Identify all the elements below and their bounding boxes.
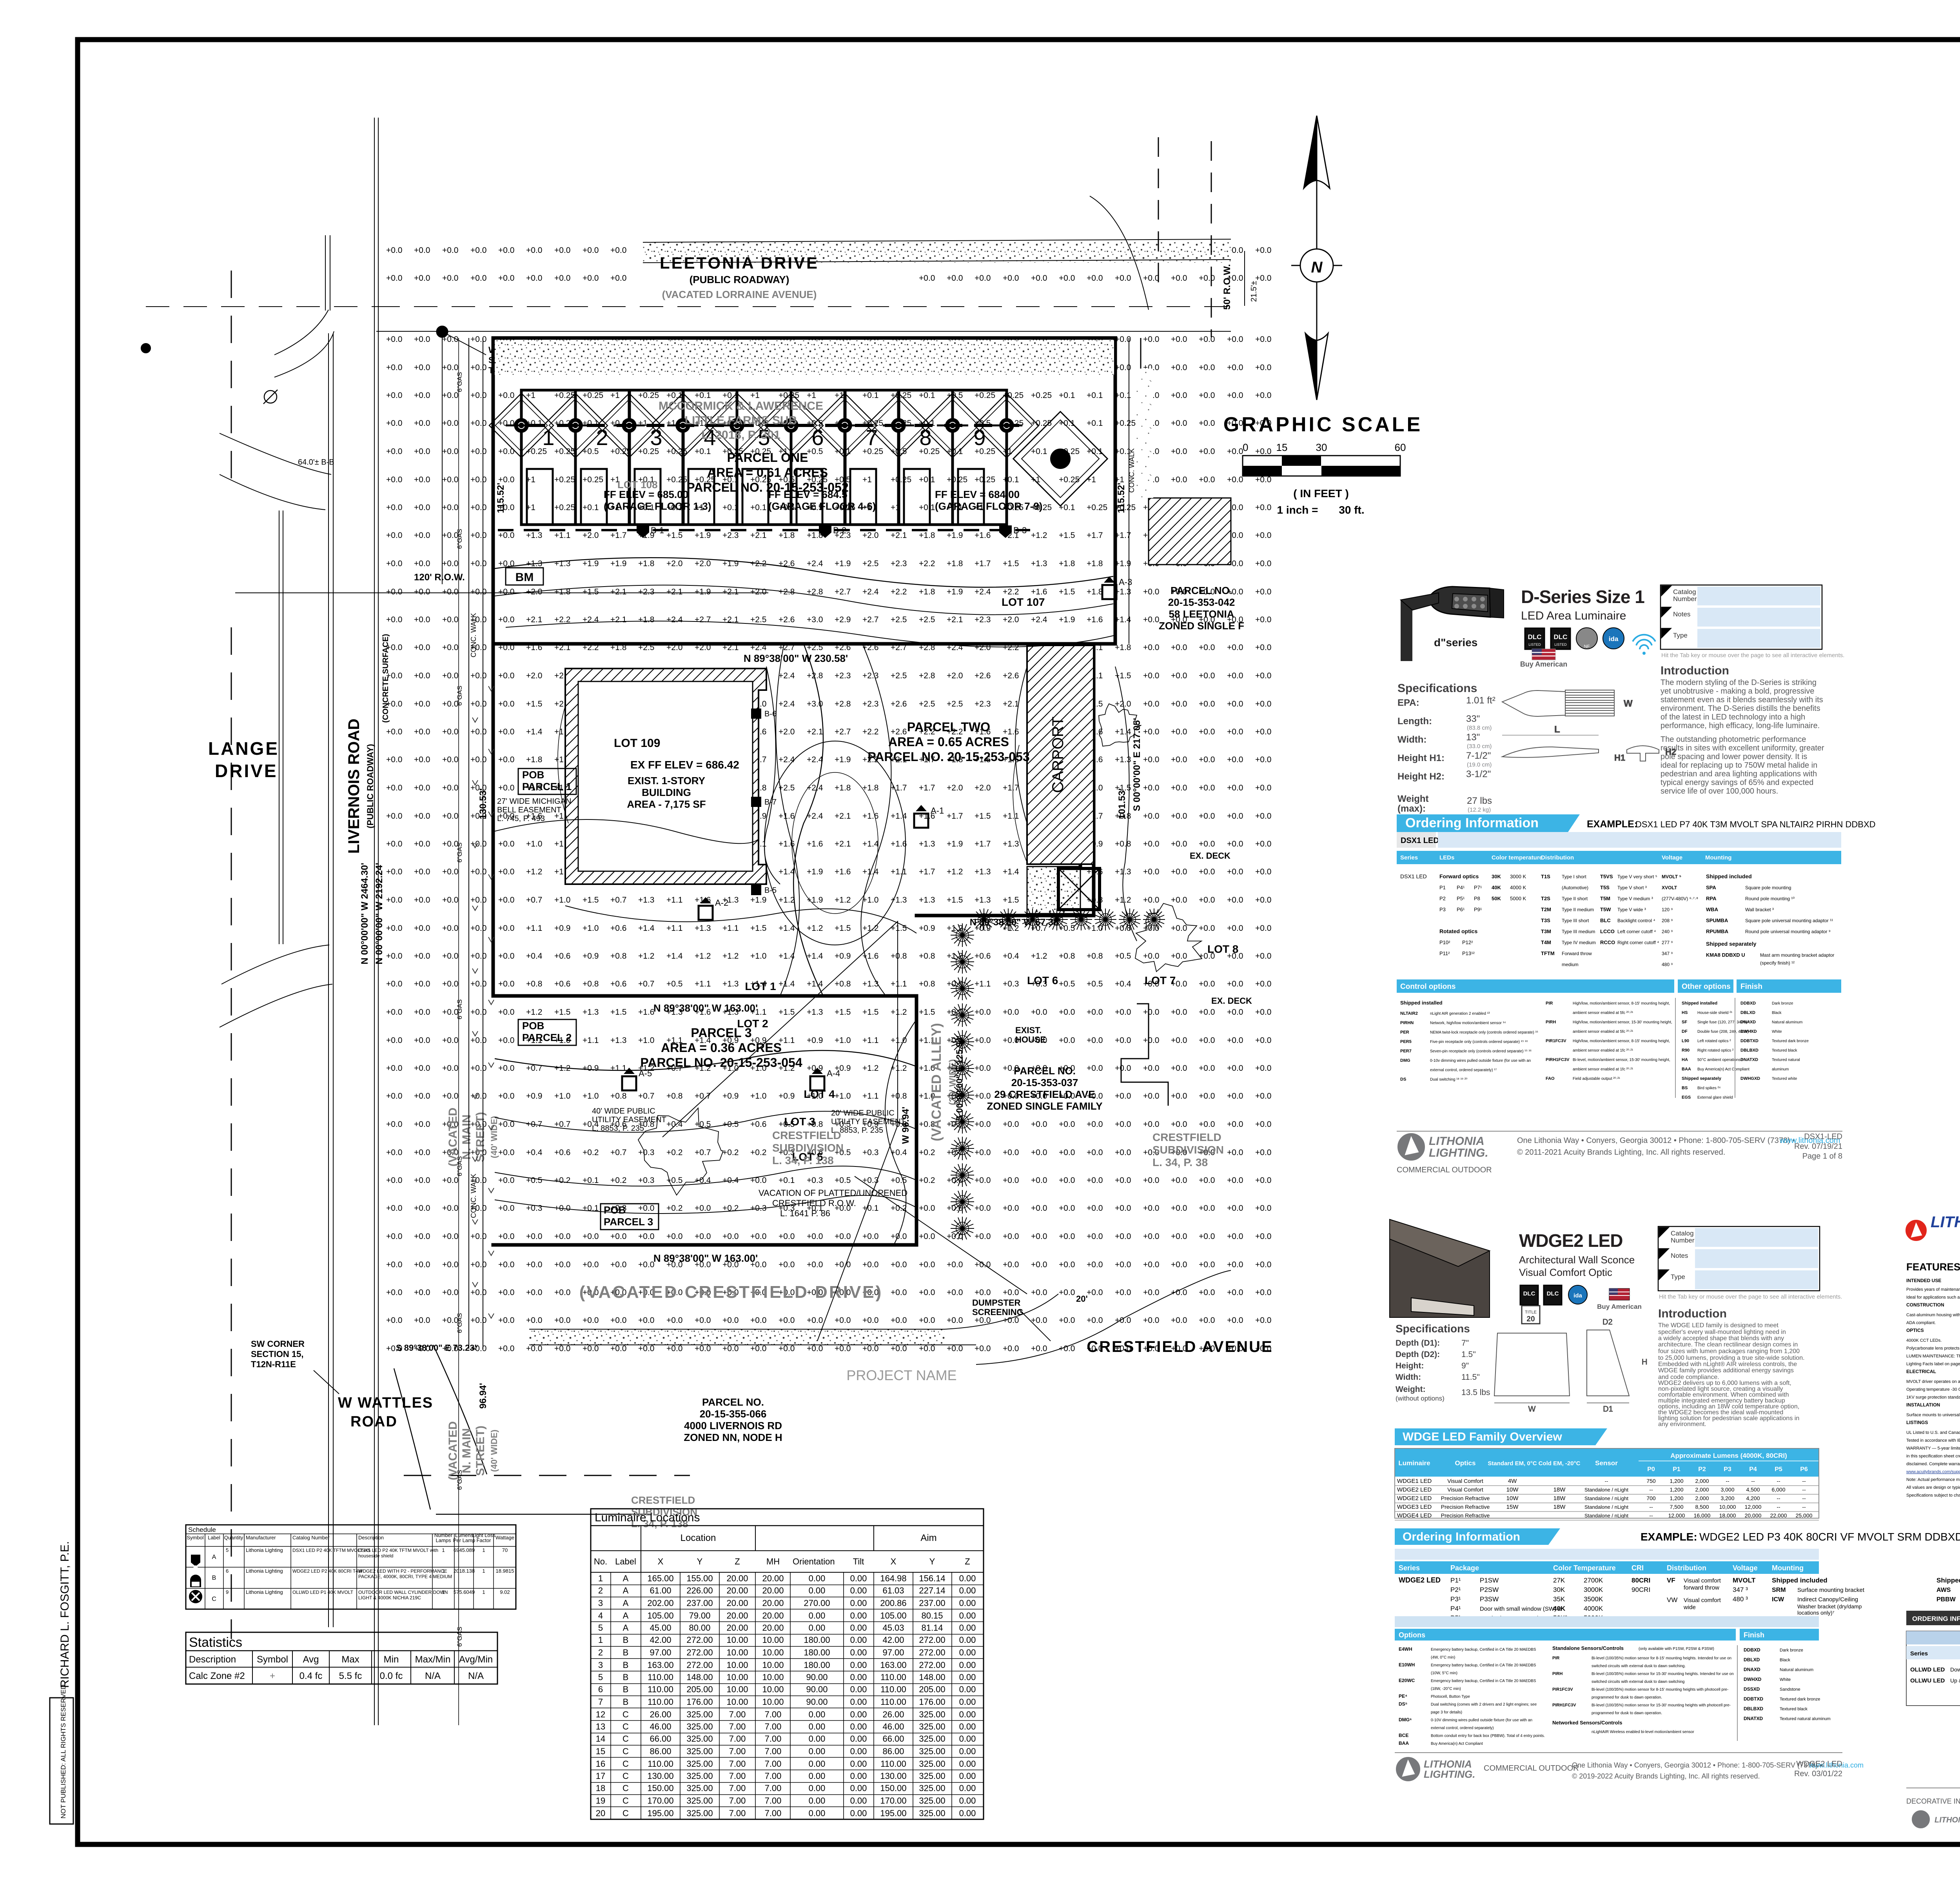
svg-text:SW CORNER: SW CORNER xyxy=(251,1339,305,1349)
svg-text:ADA compliant.: ADA compliant. xyxy=(1906,1321,1936,1325)
svg-text:1: 1 xyxy=(598,1573,603,1583)
svg-text:White: White xyxy=(1772,1030,1782,1034)
svg-text:80.15: 80.15 xyxy=(921,1611,943,1621)
svg-text:130.00: 130.00 xyxy=(647,1771,673,1781)
svg-text:Height H2:: Height H2: xyxy=(1397,771,1445,782)
svg-text:performance, high efficacy, lo: performance, high efficacy, long-life lu… xyxy=(1661,721,1820,730)
svg-text:T5S: T5S xyxy=(1600,885,1610,890)
svg-text:+0.0: +0.0 xyxy=(414,1232,430,1241)
svg-text:+2.3: +2.3 xyxy=(891,559,907,568)
svg-text:NF: NF xyxy=(1584,644,1590,649)
svg-text:+0.0: +0.0 xyxy=(470,1036,486,1045)
svg-text:P0: P0 xyxy=(1647,1466,1655,1473)
svg-text:+0.0: +0.0 xyxy=(1171,1036,1187,1045)
svg-text:+0.3: +0.3 xyxy=(638,1176,654,1185)
svg-text:+1.5: +1.5 xyxy=(526,699,542,709)
svg-text:+0.5: +0.5 xyxy=(1087,979,1103,988)
svg-text:Operating temperature -30 C to: Operating temperature -30 C to 40 C. xyxy=(1906,1387,1960,1392)
svg-text:750: 750 xyxy=(1646,1478,1656,1484)
svg-text:WDGE2 LED WITH P2 - PERFORMANC: WDGE2 LED WITH P2 - PERFORMANCE xyxy=(358,1568,447,1574)
svg-text:WDGE2 LED: WDGE2 LED xyxy=(1397,1495,1432,1502)
svg-text:+0.9: +0.9 xyxy=(835,952,851,961)
svg-text:14: 14 xyxy=(596,1734,605,1744)
svg-text:P6¹: P6¹ xyxy=(1457,907,1465,912)
svg-text:D2: D2 xyxy=(1602,1318,1613,1326)
svg-text:Optics: Optics xyxy=(1455,1459,1476,1467)
svg-text:C: C xyxy=(622,1783,629,1793)
svg-text:+0.0: +0.0 xyxy=(386,1148,402,1157)
svg-text:5: 5 xyxy=(598,1672,603,1682)
svg-text:PER7: PER7 xyxy=(1400,1049,1412,1054)
svg-text:325.00: 325.00 xyxy=(919,1722,945,1731)
svg-text:+0.0: +0.0 xyxy=(638,1316,654,1325)
svg-text:+0.4: +0.4 xyxy=(1003,952,1019,961)
svg-text:325.00: 325.00 xyxy=(919,1796,945,1806)
svg-text:+1.7: +1.7 xyxy=(975,559,991,568)
svg-text:Depth (D2):: Depth (D2): xyxy=(1396,1350,1440,1359)
svg-text:+1.0: +1.0 xyxy=(862,896,878,905)
svg-text:7.00: 7.00 xyxy=(729,1746,746,1756)
svg-text:+0.0: +0.0 xyxy=(386,783,402,792)
svg-text:+0.0: +0.0 xyxy=(1115,1176,1131,1185)
svg-text:0: 0 xyxy=(1243,441,1248,453)
svg-text:+0.0: +0.0 xyxy=(1171,1260,1187,1269)
svg-text:+0.0: +0.0 xyxy=(1143,1036,1159,1045)
svg-text:+1.1: +1.1 xyxy=(666,896,682,905)
svg-text:+2.6: +2.6 xyxy=(1003,671,1019,680)
svg-text:15: 15 xyxy=(596,1746,605,1756)
svg-text:30: 30 xyxy=(1316,441,1327,453)
svg-text:Precision Refractive: Precision Refractive xyxy=(1441,1504,1490,1510)
svg-text:0.00: 0.00 xyxy=(959,1660,976,1670)
svg-text:T5W: T5W xyxy=(1600,907,1611,912)
svg-text:(without options): (without options) xyxy=(1396,1395,1445,1402)
svg-text:+0.1: +0.1 xyxy=(1087,391,1103,400)
svg-text:325.00: 325.00 xyxy=(686,1808,713,1818)
svg-text:switched circuits with externa: switched circuits with external dusk to … xyxy=(1592,1680,1684,1684)
svg-text:+0.0: +0.0 xyxy=(442,274,458,283)
svg-text:Right rotated optics ²: Right rotated optics ² xyxy=(1697,1048,1734,1053)
svg-text:+1.1: +1.1 xyxy=(722,924,739,933)
svg-text:UL Listed to U.S. and Canadian: UL Listed to U.S. and Canadian safety st… xyxy=(1906,1430,1960,1435)
svg-text:+0.0: +0.0 xyxy=(638,1232,654,1241)
svg-text:+2.1: +2.1 xyxy=(722,587,739,596)
svg-text:+0.0: +0.0 xyxy=(386,924,402,933)
svg-text:+0.0: +0.0 xyxy=(975,1204,991,1213)
svg-text:Standalone / nLight: Standalone / nLight xyxy=(1584,1487,1628,1493)
svg-text:+0.6: +0.6 xyxy=(610,924,626,933)
svg-text:T2M: T2M xyxy=(1541,907,1551,912)
svg-text:--: -- xyxy=(1802,1478,1806,1484)
svg-text:House-side shield ²¹: House-side shield ²¹ xyxy=(1697,1011,1733,1015)
svg-text:+0.0: +0.0 xyxy=(414,896,430,905)
svg-text:150.00: 150.00 xyxy=(880,1783,906,1793)
svg-text:+0.0: +0.0 xyxy=(498,867,514,876)
svg-text:+1.0: +1.0 xyxy=(835,1036,851,1045)
svg-text:+0.0: +0.0 xyxy=(975,1148,991,1157)
svg-text:+0.0: +0.0 xyxy=(1143,643,1159,652)
svg-text:101.53': 101.53' xyxy=(1117,788,1127,819)
svg-text:+0.0: +0.0 xyxy=(414,699,430,709)
svg-text:+2.1: +2.1 xyxy=(610,615,626,624)
svg-text:+1.8: +1.8 xyxy=(835,783,851,792)
svg-text:DWHXD: DWHXD xyxy=(1740,1029,1757,1034)
svg-text:d"series: d"series xyxy=(1434,636,1477,649)
svg-text:+0.7: +0.7 xyxy=(526,896,542,905)
svg-text:+1.4: +1.4 xyxy=(779,867,795,876)
svg-text:325.00: 325.00 xyxy=(686,1710,713,1719)
svg-text:Indirect Canopy/Ceiling: Indirect Canopy/Ceiling xyxy=(1797,1596,1858,1603)
svg-text:+0.0: +0.0 xyxy=(526,1260,542,1269)
svg-text:+0.0: +0.0 xyxy=(414,475,430,484)
svg-text:CRESTFIELD: CRESTFIELD xyxy=(772,1129,841,1141)
svg-text:Finish: Finish xyxy=(1740,983,1762,991)
svg-text:325.00: 325.00 xyxy=(919,1771,945,1781)
svg-text:+0.0: +0.0 xyxy=(498,896,514,905)
svg-text:E20WC: E20WC xyxy=(1399,1678,1415,1683)
svg-text:+2.0: +2.0 xyxy=(526,671,542,680)
svg-text:6"GAS: 6"GAS xyxy=(456,1156,463,1176)
svg-text:0.00: 0.00 xyxy=(850,1586,867,1595)
svg-text:+0.0: +0.0 xyxy=(1171,475,1187,484)
svg-text:30K: 30K xyxy=(1553,1586,1565,1593)
svg-text:+2.5: +2.5 xyxy=(947,699,963,709)
svg-text:+0.25: +0.25 xyxy=(554,391,575,400)
svg-text:LOT 109: LOT 109 xyxy=(614,737,660,750)
svg-text:+1.4: +1.4 xyxy=(1003,867,1019,876)
svg-text:+0.5: +0.5 xyxy=(526,1176,542,1185)
svg-text:7.00: 7.00 xyxy=(765,1808,782,1818)
svg-text:0.00: 0.00 xyxy=(850,1660,867,1670)
svg-text:0.00: 0.00 xyxy=(850,1746,867,1756)
svg-text:+0.25: +0.25 xyxy=(554,475,575,484)
svg-text:+0.0: +0.0 xyxy=(414,867,430,876)
svg-text:Wattage: Wattage xyxy=(495,1535,514,1541)
svg-text:Door with small window (SW) is: Door with small window (SW) is xyxy=(1480,1606,1562,1612)
svg-text:P12²: P12² xyxy=(1462,939,1473,945)
svg-text:+1.1: +1.1 xyxy=(695,979,711,988)
svg-text:ICW: ICW xyxy=(1772,1596,1784,1603)
svg-text:LITHONIA: LITHONIA xyxy=(1429,1135,1485,1148)
svg-text:DDBTXD: DDBTXD xyxy=(1740,1039,1759,1043)
svg-text:+0.0: +0.0 xyxy=(583,246,599,255)
svg-text:+1.5: +1.5 xyxy=(554,1008,570,1017)
svg-text:120' R.O.W.: 120' R.O.W. xyxy=(414,572,465,583)
svg-text:+0.1: +0.1 xyxy=(862,1204,878,1213)
svg-text:+0.0: +0.0 xyxy=(1143,1232,1159,1241)
svg-text:+0.0: +0.0 xyxy=(1087,1036,1103,1045)
svg-text:(19.0 cm): (19.0 cm) xyxy=(1467,761,1492,768)
svg-text:+0.0: +0.0 xyxy=(1227,979,1243,988)
svg-text:+0.0: +0.0 xyxy=(1003,1288,1019,1297)
svg-text:LANGE: LANGE xyxy=(208,738,279,759)
svg-text:+2.4: +2.4 xyxy=(779,671,795,680)
svg-text:+0.0: +0.0 xyxy=(442,1260,458,1269)
svg-text:+0.0: +0.0 xyxy=(386,391,402,400)
svg-text:+0.0: +0.0 xyxy=(1143,839,1159,848)
svg-text:Round pole universal mounting: Round pole universal mounting adaptor ⁹ xyxy=(1745,929,1831,934)
svg-text:+0.0: +0.0 xyxy=(1115,1064,1131,1073)
svg-text:+2.9: +2.9 xyxy=(835,615,851,624)
svg-text:Lighting Facts label on page 2: Lighting Facts label on page 2 for perfo… xyxy=(1906,1362,1960,1366)
svg-text:97.00: 97.00 xyxy=(882,1648,904,1657)
svg-text:0.00: 0.00 xyxy=(809,1611,826,1621)
svg-text:nLight AIR generation 2 enable: nLight AIR generation 2 enabled ¹³ xyxy=(1430,1012,1490,1016)
svg-text:Shipped included: Shipped included xyxy=(1772,1577,1828,1584)
svg-text:+0.0: +0.0 xyxy=(1143,587,1159,596)
svg-text:20.00: 20.00 xyxy=(762,1623,784,1633)
svg-text:170.00: 170.00 xyxy=(880,1796,906,1806)
svg-text:+0.8: +0.8 xyxy=(1115,839,1131,848)
svg-text:+0.0: +0.0 xyxy=(470,924,486,933)
svg-text:N/A: N/A xyxy=(468,1671,484,1681)
svg-text:+0.0: +0.0 xyxy=(526,1288,542,1297)
svg-text:+0.0: +0.0 xyxy=(414,503,430,512)
svg-text:+2.4: +2.4 xyxy=(807,783,823,792)
svg-text:T5VS: T5VS xyxy=(1600,874,1613,879)
svg-text:+0.0: +0.0 xyxy=(835,1344,851,1353)
svg-text:+0.0: +0.0 xyxy=(1199,867,1215,876)
svg-text:T1S: T1S xyxy=(1541,874,1550,879)
svg-text:DSX1 LED: DSX1 LED xyxy=(1401,836,1439,845)
svg-text:+0.0: +0.0 xyxy=(1115,1232,1131,1241)
svg-text:+2.1: +2.1 xyxy=(835,812,851,821)
svg-text:Bi-level (100/35%) motion sens: Bi-level (100/35%) motion sensor for 8-1… xyxy=(1592,1688,1728,1692)
svg-text:CRESTFIELD AVENUE: CRESTFIELD AVENUE xyxy=(1087,1338,1273,1355)
svg-text:+0.5: +0.5 xyxy=(891,1176,907,1185)
svg-text:+0.0: +0.0 xyxy=(1227,755,1243,764)
svg-text:C: C xyxy=(622,1759,629,1769)
svg-text:105.00: 105.00 xyxy=(880,1611,906,1621)
svg-text:DWHXD: DWHXD xyxy=(1744,1677,1762,1682)
svg-text:+2.5: +2.5 xyxy=(891,671,907,680)
svg-text:LEETONIA DRIVE: LEETONIA DRIVE xyxy=(660,254,819,272)
svg-text:10.00: 10.00 xyxy=(762,1635,784,1645)
svg-text:(VACATED CRESTFIELD DRIVE): (VACATED CRESTFIELD DRIVE) xyxy=(579,1283,883,1302)
svg-text:Downlight: Downlight xyxy=(1950,1666,1960,1673)
svg-text:ambient sensor enabled at 1fc: ambient sensor enabled at 1fc ²⁰·²¹ xyxy=(1573,1067,1633,1072)
svg-text:325.00: 325.00 xyxy=(686,1783,713,1793)
svg-text:7.00: 7.00 xyxy=(765,1746,782,1756)
svg-text:--: -- xyxy=(1802,1504,1806,1510)
svg-text:+0.0: +0.0 xyxy=(1143,755,1159,764)
svg-text:B-6: B-6 xyxy=(764,710,777,718)
svg-text:+1.8: +1.8 xyxy=(638,559,654,568)
svg-text:(33.0 cm): (33.0 cm) xyxy=(1467,743,1492,750)
svg-text:VF: VF xyxy=(1667,1577,1675,1584)
svg-text:Orientation: Orientation xyxy=(793,1557,835,1566)
svg-text:+0.9: +0.9 xyxy=(526,1092,542,1101)
svg-text:+0.0: +0.0 xyxy=(386,1092,402,1101)
svg-text:480 ³: 480 ³ xyxy=(1733,1595,1748,1603)
svg-text:Max/Min: Max/Min xyxy=(415,1654,451,1665)
svg-text:+0.0: +0.0 xyxy=(442,559,458,568)
svg-text:+0.2: +0.2 xyxy=(919,1176,935,1185)
svg-text:+1.8: +1.8 xyxy=(1087,587,1103,596)
svg-text:(VACATED ALLEY): (VACATED ALLEY) xyxy=(929,1023,944,1141)
svg-text:CARPORT: CARPORT xyxy=(1049,717,1067,793)
svg-text:+0.0: +0.0 xyxy=(442,363,458,372)
svg-text:+2.8: +2.8 xyxy=(835,699,851,709)
svg-text:+0.0: +0.0 xyxy=(947,1260,963,1269)
svg-text:+0.9: +0.9 xyxy=(583,952,599,961)
svg-text:P5: P5 xyxy=(1775,1466,1782,1473)
svg-text:+0.0: +0.0 xyxy=(1199,896,1215,905)
svg-text:5: 5 xyxy=(226,1547,229,1553)
svg-text:CRI: CRI xyxy=(1632,1564,1644,1572)
svg-text:7.00: 7.00 xyxy=(765,1771,782,1781)
svg-text:+0.4: +0.4 xyxy=(526,952,543,961)
svg-text:Square pole mounting: Square pole mounting xyxy=(1745,885,1791,890)
svg-text:+0.0: +0.0 xyxy=(1143,1008,1159,1017)
svg-text:HOUSE: HOUSE xyxy=(1015,1035,1046,1045)
svg-text:--: -- xyxy=(1605,1478,1608,1484)
svg-text:+0.0: +0.0 xyxy=(1031,274,1047,283)
svg-text:D-Series Size 1: D-Series Size 1 xyxy=(1521,587,1644,607)
svg-text:+0.0: +0.0 xyxy=(386,812,402,821)
svg-text:+0.0: +0.0 xyxy=(386,1008,402,1017)
svg-text:+1.1: +1.1 xyxy=(666,924,682,933)
svg-text:+0.0: +0.0 xyxy=(1199,727,1215,736)
svg-text:0.00: 0.00 xyxy=(959,1684,976,1694)
svg-text:7.00: 7.00 xyxy=(729,1771,746,1781)
svg-text:+0.0: +0.0 xyxy=(1227,447,1243,456)
svg-text:9: 9 xyxy=(226,1589,229,1595)
svg-text:P3¹: P3¹ xyxy=(1450,1595,1461,1603)
svg-text:195.00: 195.00 xyxy=(880,1808,906,1818)
svg-text:programmed for dusk to dawn op: programmed for dusk to dawn operation. xyxy=(1592,1711,1662,1715)
svg-text:+0.0: +0.0 xyxy=(1255,924,1271,933)
svg-text:--: -- xyxy=(1802,1486,1806,1493)
svg-text:20.00: 20.00 xyxy=(762,1611,784,1621)
svg-text:105.00: 105.00 xyxy=(647,1611,673,1621)
svg-text:Backlight control ⁴: Backlight control ⁴ xyxy=(1617,918,1655,923)
svg-text:+0.0: +0.0 xyxy=(1115,1148,1131,1157)
svg-text:+1.2: +1.2 xyxy=(891,1008,907,1017)
svg-text:+0.0: +0.0 xyxy=(386,727,402,736)
svg-text:+0.0: +0.0 xyxy=(442,1176,458,1185)
svg-text:XVOLT: XVOLT xyxy=(1662,885,1677,890)
svg-text:+0.0: +0.0 xyxy=(1227,1176,1243,1185)
svg-text:(specify finish) ¹²: (specify finish) ¹² xyxy=(1760,960,1795,966)
svg-text:+0.0: +0.0 xyxy=(1059,274,1075,283)
svg-text:+0.0: +0.0 xyxy=(414,1120,430,1129)
svg-text:AREA = 0.36 ACRES: AREA = 0.36 ACRES xyxy=(661,1041,782,1055)
svg-text:+0.0: +0.0 xyxy=(1227,867,1243,876)
svg-text:+0.2: +0.2 xyxy=(750,1148,766,1157)
svg-text:7.00: 7.00 xyxy=(765,1759,782,1769)
svg-text:20-15-353-037: 20-15-353-037 xyxy=(1011,1077,1078,1088)
svg-text:130.00: 130.00 xyxy=(880,1771,906,1781)
svg-text:180.00: 180.00 xyxy=(804,1635,830,1645)
svg-text:20-15-353-042: 20-15-353-042 xyxy=(1168,596,1235,608)
svg-text:0.00: 0.00 xyxy=(959,1771,976,1781)
svg-text:7.00: 7.00 xyxy=(765,1722,782,1731)
svg-text:WDGE2 LED P2 40K 80CRI T4M: WDGE2 LED P2 40K 80CRI T4M xyxy=(292,1568,362,1574)
svg-text:MH: MH xyxy=(766,1557,780,1566)
svg-text:+0.0: +0.0 xyxy=(1171,1064,1187,1073)
svg-text:Embedded with nLight® AIR wire: Embedded with nLight® AIR wireless contr… xyxy=(1658,1361,1797,1368)
svg-text:110.00: 110.00 xyxy=(648,1672,673,1682)
svg-text:Standard EM, 0°C: Standard EM, 0°C xyxy=(1488,1460,1537,1467)
svg-text:Mounting: Mounting xyxy=(1772,1564,1804,1572)
svg-text:+0.0: +0.0 xyxy=(470,447,486,456)
svg-text:79.00: 79.00 xyxy=(689,1611,710,1621)
svg-text:+0.0: +0.0 xyxy=(1199,1092,1215,1101)
svg-text:86.00: 86.00 xyxy=(650,1746,671,1756)
svg-text:+0.0: +0.0 xyxy=(947,1316,963,1325)
svg-text:TITLE: TITLE xyxy=(1525,1310,1537,1315)
svg-text:+0.0: +0.0 xyxy=(470,1092,486,1101)
svg-text:+0.0: +0.0 xyxy=(414,274,430,283)
svg-text:+0.0: +0.0 xyxy=(1171,363,1187,372)
svg-text:+0.0: +0.0 xyxy=(722,1232,739,1241)
svg-text:P2¹: P2¹ xyxy=(1450,1586,1461,1593)
svg-text:ambient sensor enabled at 1fc: ambient sensor enabled at 1fc ²⁰·²¹ xyxy=(1573,1048,1633,1053)
svg-text:Type III short: Type III short xyxy=(1562,918,1589,923)
svg-text:6"GAS: 6"GAS xyxy=(456,529,463,549)
svg-text:+2.0: +2.0 xyxy=(779,727,795,736)
svg-text:A: A xyxy=(623,1623,629,1633)
svg-text:+0.0: +0.0 xyxy=(779,1260,795,1269)
svg-text:+1.8: +1.8 xyxy=(919,587,935,596)
svg-text:21.5'±: 21.5'± xyxy=(1250,281,1258,302)
svg-text:Provides years of maintenance-: Provides years of maintenance-free illum… xyxy=(1906,1287,1960,1292)
svg-text:202.00: 202.00 xyxy=(647,1598,673,1608)
svg-text:WDGE2 LED: WDGE2 LED xyxy=(1796,1760,1842,1768)
svg-text:MVOLT: MVOLT xyxy=(1733,1577,1756,1584)
svg-text:+1.4: +1.4 xyxy=(1115,727,1131,736)
svg-text:3000 K: 3000 K xyxy=(1510,874,1526,879)
svg-text:+0.0: +0.0 xyxy=(1087,1120,1103,1129)
svg-text:disclaimed. Complete warranty: disclaimed. Complete warranty terms loca… xyxy=(1906,1462,1960,1466)
svg-text:+0.0: +0.0 xyxy=(498,671,514,680)
svg-text:+0.0: +0.0 xyxy=(1255,1092,1271,1101)
svg-text:DSSXD: DSSXD xyxy=(1744,1686,1760,1692)
svg-text:+0.0: +0.0 xyxy=(1255,755,1271,764)
svg-text:Textured natural aluminum: Textured natural aluminum xyxy=(1780,1717,1831,1721)
svg-text:+0.0: +0.0 xyxy=(1171,671,1187,680)
svg-text:+2.5: +2.5 xyxy=(891,615,907,624)
svg-text:P9¹: P9¹ xyxy=(1474,907,1482,912)
svg-text:2,000: 2,000 xyxy=(1695,1486,1709,1493)
svg-text:3,200: 3,200 xyxy=(1720,1495,1734,1501)
svg-text:Y: Y xyxy=(929,1557,935,1566)
svg-text:+0.0: +0.0 xyxy=(1031,1176,1047,1185)
svg-text:64.0'± B-B: 64.0'± B-B xyxy=(298,458,334,467)
svg-text:13: 13 xyxy=(596,1722,605,1731)
svg-text:UTILITY EASEMENT: UTILITY EASEMENT xyxy=(831,1117,906,1126)
svg-text:+1.2: +1.2 xyxy=(835,896,851,905)
svg-text:+0.0: +0.0 xyxy=(975,1092,991,1101)
svg-text:+0.8: +0.8 xyxy=(583,979,599,988)
svg-text:Dark bronze: Dark bronze xyxy=(1772,1001,1793,1006)
svg-text:+0.25: +0.25 xyxy=(1059,475,1080,484)
svg-text:+0.0: +0.0 xyxy=(414,1316,430,1325)
svg-text:50°C ambient operations ¹: 50°C ambient operations ¹ xyxy=(1697,1058,1743,1062)
svg-text:+0.0: +0.0 xyxy=(1199,419,1215,428)
svg-text:Buy American: Buy American xyxy=(1520,660,1567,668)
svg-text:+1.7: +1.7 xyxy=(1087,531,1103,540)
svg-text:STREET): STREET) xyxy=(474,1426,487,1476)
svg-text:+0.0: +0.0 xyxy=(1031,1204,1047,1213)
svg-text:+0.2: +0.2 xyxy=(666,1148,682,1157)
svg-text:6"GAS: 6"GAS xyxy=(456,843,463,863)
svg-text:X: X xyxy=(658,1557,664,1566)
svg-text:PARCEL NO. 20-15-253-053: PARCEL NO. 20-15-253-053 xyxy=(867,750,1029,764)
svg-text:PARCEL NO.: PARCEL NO. xyxy=(1014,1065,1076,1077)
svg-text:LIGHT & 4000K NICHIA 219C: LIGHT & 4000K NICHIA 219C xyxy=(358,1595,421,1601)
